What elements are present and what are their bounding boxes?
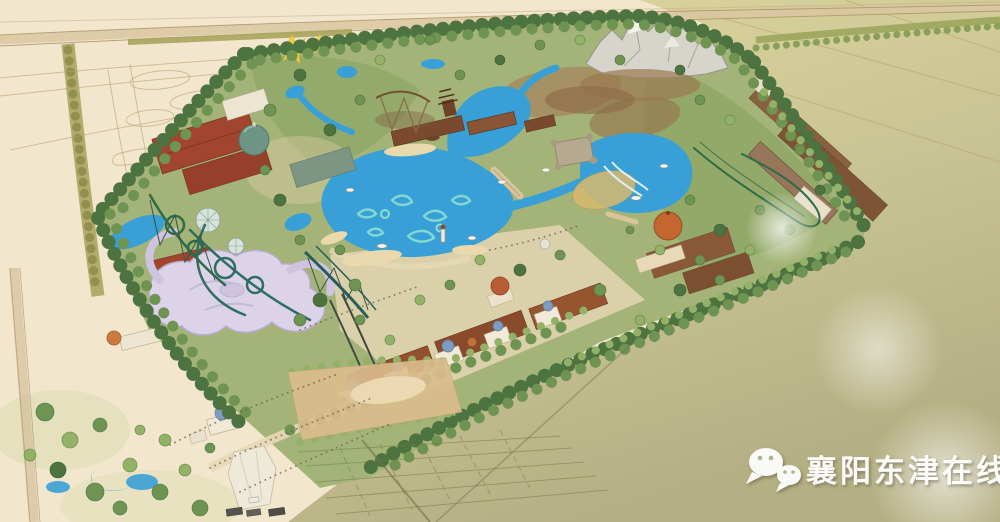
lighthouse — [441, 225, 446, 243]
watermark-text: 襄阳东津在线 — [806, 454, 1000, 490]
rendering-canvas: 襄阳东津在线 — [0, 0, 1000, 522]
teal-dome — [239, 125, 269, 155]
theme-park-rendering: 襄阳东津在线 — [0, 0, 1000, 522]
orange-dome-west — [107, 331, 121, 345]
